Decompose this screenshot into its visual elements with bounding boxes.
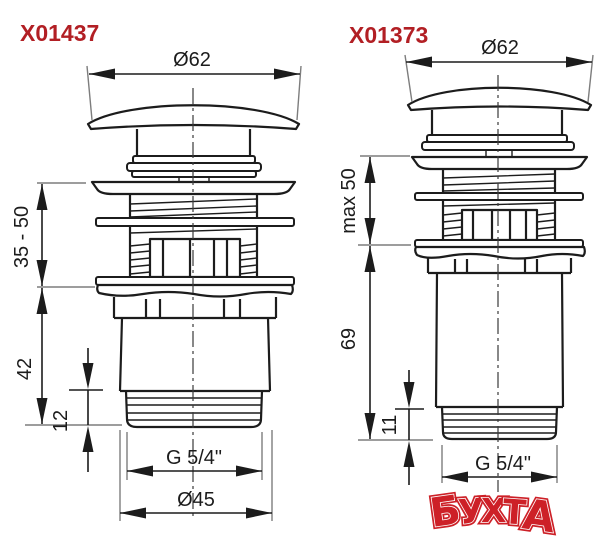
bottom-thread bbox=[126, 391, 262, 427]
hex-nut bbox=[428, 258, 571, 273]
locknut-plate bbox=[96, 277, 294, 285]
locknut-plate bbox=[415, 193, 583, 200]
slotted-insert-slots bbox=[163, 239, 227, 277]
dim-label-body-height: 42 bbox=[14, 358, 36, 380]
drain-valve-diagrams: X01437 bbox=[0, 0, 616, 540]
dim-label-flange-diameter: Ø45 bbox=[177, 489, 215, 511]
body-tube bbox=[436, 273, 563, 407]
figure-x01373: X01373 bbox=[338, 22, 593, 492]
dim-label-thread-size: G 5/4" bbox=[166, 447, 222, 469]
bottom-thread bbox=[442, 407, 557, 439]
seal-flange bbox=[415, 247, 585, 259]
thread-hatching bbox=[443, 203, 555, 236]
valve-neck bbox=[432, 110, 562, 135]
dimension-thread-size-x01373: G 5/4" bbox=[442, 445, 557, 483]
watermark-buhta: Б Б У У Х Х Т Т А А bbox=[427, 487, 559, 540]
technical-drawing-page: X01437 bbox=[0, 0, 616, 540]
thread-lines bbox=[443, 414, 556, 433]
hex-nut bbox=[114, 297, 276, 318]
dimension-height-range-x01437: 35 - 50 bbox=[11, 183, 95, 287]
dimension-body-height-x01437: 42 bbox=[14, 288, 122, 425]
dim-label-thread-length: 12 bbox=[50, 410, 72, 432]
dimension-thread-length-x01373: 11 bbox=[379, 370, 424, 485]
valve-ring bbox=[127, 163, 261, 171]
thread-hatching bbox=[443, 174, 555, 191]
valve-ring bbox=[132, 171, 256, 177]
dim-label-top-diameter: Ø62 bbox=[481, 37, 519, 59]
dim-label-height-range: 35 - 50 bbox=[11, 206, 33, 268]
valve-flange bbox=[412, 157, 587, 169]
dimension-thread-length-x01437: 12 bbox=[50, 348, 103, 472]
dim-label-thread-length: 11 bbox=[379, 415, 401, 436]
dim-label-height-max: max 50 bbox=[338, 168, 360, 234]
body-tube bbox=[120, 318, 270, 391]
dimension-height-max-x01373: max 50 bbox=[338, 156, 411, 245]
watermark-letter: А bbox=[520, 489, 559, 540]
dim-label-thread-size: G 5/4" bbox=[475, 453, 531, 475]
figure-label-x01373: X01373 bbox=[349, 22, 428, 48]
seal-flange bbox=[97, 285, 293, 297]
valve-drawing-x01373 bbox=[408, 75, 591, 492]
figure-x01437: X01437 bbox=[11, 20, 301, 521]
thread-lines bbox=[127, 398, 261, 420]
valve-ring bbox=[133, 156, 255, 163]
valve-ring bbox=[427, 135, 567, 142]
valve-cap bbox=[408, 88, 591, 110]
dimension-flange-diameter-x01437: Ø45 bbox=[120, 430, 272, 521]
dimension-thread-size-x01437: G 5/4" bbox=[127, 432, 262, 480]
slotted-insert-slots bbox=[473, 210, 526, 240]
locknut-plate bbox=[96, 218, 294, 226]
figure-label-x01437: X01437 bbox=[20, 20, 99, 46]
dim-label-top-diameter: Ø62 bbox=[173, 49, 211, 71]
dim-label-body-height: 69 bbox=[338, 328, 360, 350]
dimension-body-height-x01373: 69 bbox=[338, 246, 433, 440]
